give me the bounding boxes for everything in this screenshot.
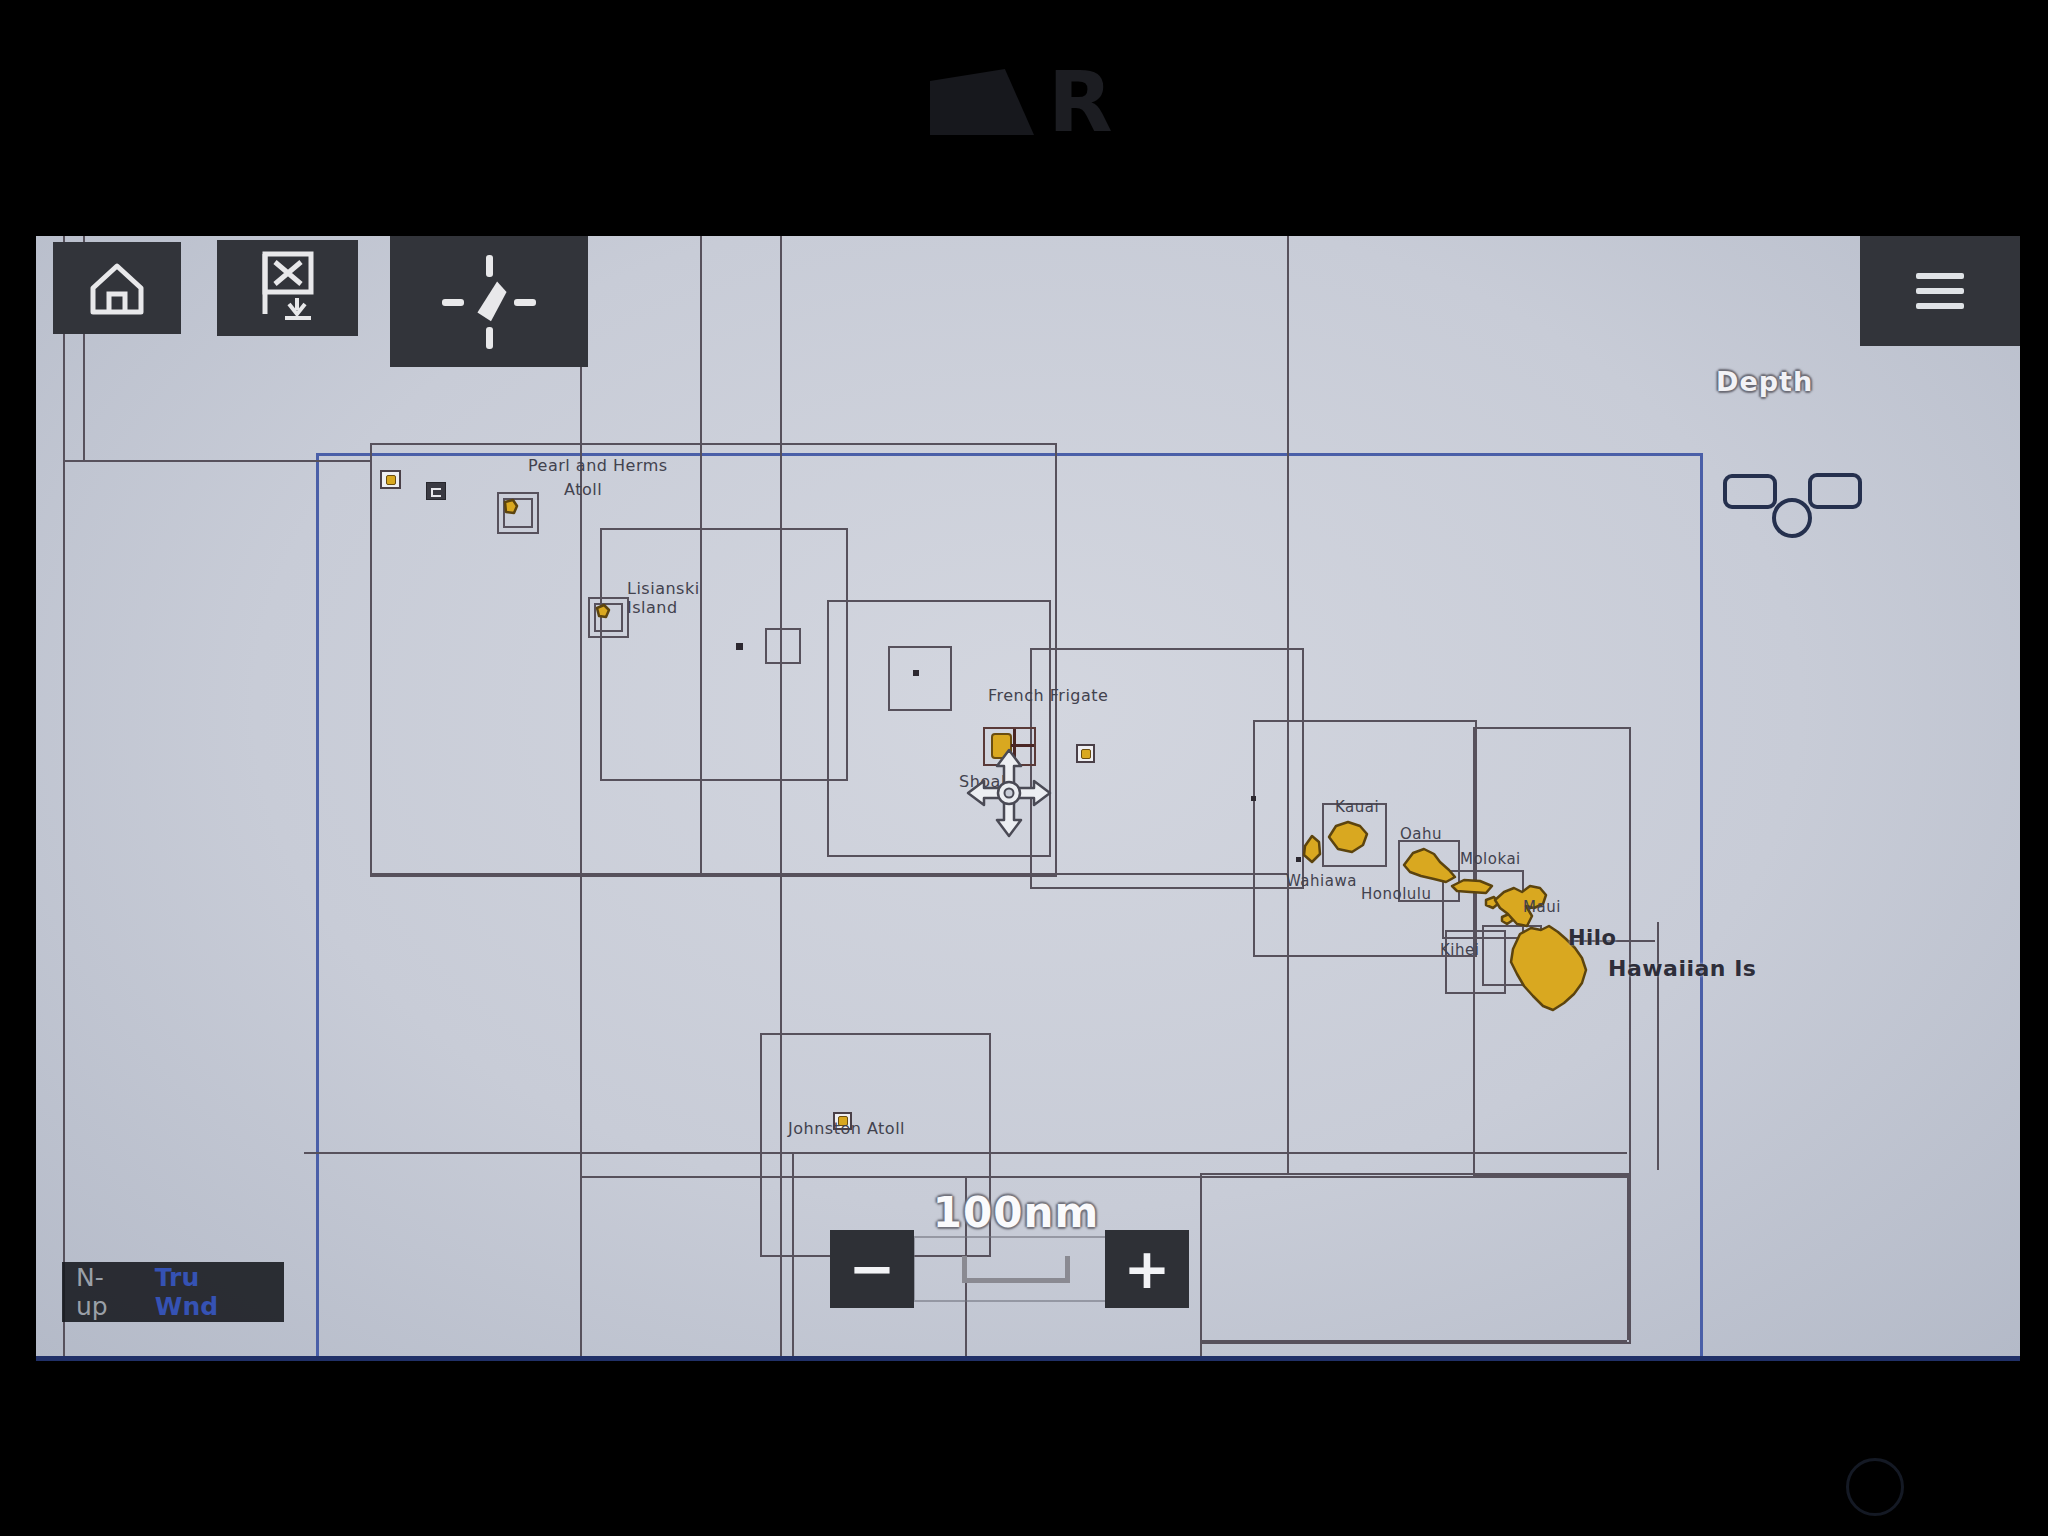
scale-range-label: 100nm — [926, 1188, 1106, 1237]
place-label-lisianski-1: Lisianski — [627, 579, 700, 598]
find-ship-button[interactable] — [390, 236, 588, 367]
waypoint-button[interactable] — [217, 240, 358, 336]
place-label-french-frigate: French Frigate — [988, 686, 1108, 705]
place-label-oahu: Oahu — [1400, 825, 1442, 843]
raymarine-letter: R — [1048, 69, 1113, 135]
menu-icon — [1916, 273, 1964, 309]
place-label-pearl-herms-1: Pearl and Herms — [528, 456, 668, 475]
zoom-in-button[interactable]: + — [1105, 1230, 1189, 1308]
waypoint-flag-icon — [253, 248, 323, 328]
place-label-molokai: Molokai — [1460, 850, 1521, 868]
databox-center[interactable] — [1772, 498, 1812, 538]
wind-mode[interactable]: Tru Wnd — [155, 1263, 270, 1321]
zoom-out-button[interactable]: − — [830, 1230, 914, 1308]
scale-bracket — [962, 1256, 1070, 1283]
place-label-hilo: Hilo — [1568, 926, 1616, 950]
place-label-wahiawa: Wahiawa — [1286, 872, 1357, 890]
orientation-mode[interactable]: N-up — [76, 1263, 135, 1321]
place-label-johnston-atoll: Johnston Atoll — [788, 1119, 905, 1138]
place-label-honolulu: Honolulu — [1361, 885, 1432, 903]
find-ship-icon — [434, 247, 544, 357]
raymarine-logo: R — [930, 58, 1190, 146]
databox-left[interactable] — [1723, 474, 1777, 509]
depth-overlay-label: Depth — [1716, 366, 1813, 397]
chart-cursor[interactable] — [966, 748, 1052, 838]
place-label-pearl-herms-2: Atoll — [564, 480, 602, 499]
place-label-maui: Maui — [1523, 898, 1561, 916]
place-label-kauai: Kauai — [1335, 798, 1379, 816]
raymarine-sail-icon — [930, 69, 1034, 135]
place-label-lisianski-2: Island — [627, 598, 678, 617]
home-button[interactable] — [53, 242, 181, 334]
power-button[interactable] — [1846, 1458, 1904, 1516]
home-icon — [87, 260, 147, 316]
chartplotter-screen: Pearl and HermsAtollLisianskiIslandFrenc… — [36, 236, 2020, 1361]
place-label-kihei: Kihei — [1440, 941, 1479, 959]
databox-right[interactable] — [1808, 473, 1862, 509]
menu-button[interactable] — [1860, 236, 2020, 346]
place-label-hawaiian-is: Hawaiian Is — [1608, 956, 1756, 981]
status-bar: N-up Tru Wnd — [62, 1262, 284, 1322]
